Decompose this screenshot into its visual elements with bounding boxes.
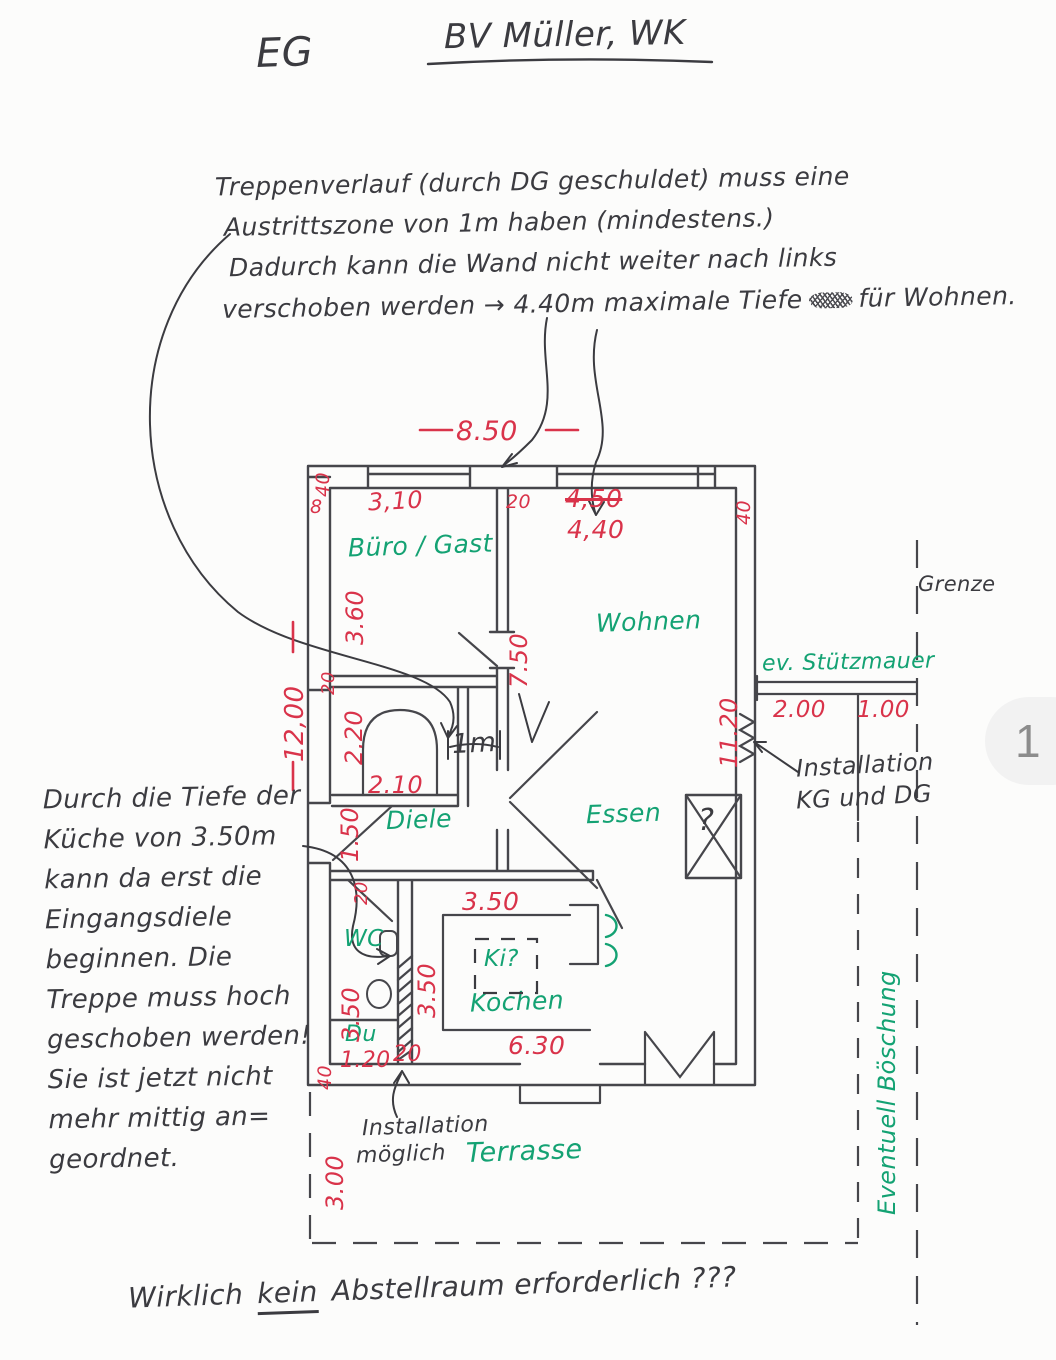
site-label-grenze: Grenze — [918, 572, 995, 596]
room-label-terrasse: Terrasse — [465, 1134, 582, 1169]
dim-stair-length: 2.10 — [368, 772, 423, 800]
dim-du-width: 1.20 — [340, 1048, 391, 1073]
left-note: Durch die Tiefe der Küche von 3.50m kann… — [43, 776, 314, 1181]
dim-wall-20-wc: 20 — [352, 881, 373, 905]
scribbled-out-word — [808, 292, 852, 309]
dim-stair-width: 2.20 — [341, 710, 369, 765]
dim-kitchen-depth-side: 3.50 — [414, 963, 442, 1018]
dim-buero-depth: 3.60 — [342, 590, 370, 645]
left-note-line: beginnen. Die — [45, 936, 310, 981]
dim-wohnen-depth: 7.50 — [506, 633, 534, 688]
dim-shaft-20: 20 — [393, 1042, 422, 1067]
bottom-question-emphasized: kein — [257, 1275, 319, 1315]
dim-stuetzmauer-length: 2.00 — [773, 697, 826, 723]
doors-and-fixtures — [333, 633, 917, 1103]
dim-kitchen-opening: 3.50 — [462, 888, 519, 917]
dim-kitchen-width: 6.30 — [508, 1032, 565, 1061]
dim-wall-40-right-top: 40 — [734, 500, 756, 525]
dim-wall-8-top-left: 8 — [310, 497, 323, 519]
room-label-wohnen: Wohnen — [596, 606, 702, 638]
dim-total-width: 8.50 — [456, 416, 518, 447]
dim-wohnen-width-new: 4,40 — [567, 516, 624, 545]
kitchen-island-dashed-box — [472, 936, 540, 996]
dim-wall-40-bottom-left: 40 — [315, 1065, 337, 1090]
installation-shaft-note-line-2: möglich — [356, 1140, 447, 1168]
room-label-essen: Essen — [586, 799, 662, 830]
page-title: BV Müller, WK — [444, 14, 686, 61]
left-note-line: mehr mittig an= — [48, 1096, 313, 1141]
left-note-line: geordnet. — [49, 1136, 314, 1181]
dim-stuetzmauer-gap: 1.00 — [857, 697, 910, 723]
room-label-wc: WC — [344, 926, 384, 952]
site-label-stuetzmauer: ev. Stützmauer — [762, 648, 935, 676]
green-door-arcs — [606, 915, 617, 966]
dim-total-depth: 12,00 — [281, 686, 311, 762]
dim-wall-40-top-left: 40 — [313, 472, 335, 497]
floor-label: EG — [255, 29, 314, 77]
left-note-line: Durch die Tiefe der — [43, 776, 308, 821]
dim-entry-door: 1.50 — [337, 807, 365, 862]
dim-wohnen-width-old: 4,50 — [565, 485, 622, 514]
left-note-line: kann da erst die — [44, 856, 309, 901]
floor-plan-sketch-page: EG BV Müller, WK Treppenverlauf (durch D… — [0, 0, 1056, 1360]
site-label-boeschung: Eventuell Böschung — [874, 970, 902, 1215]
dim-wall-20-left: 20 — [319, 671, 340, 695]
one-meter-annotation: 1m — [451, 727, 497, 760]
left-note-line: Küche von 3.50m — [43, 816, 308, 861]
toilet-bowl — [367, 980, 391, 1008]
room-label-diele: Diele — [386, 805, 453, 836]
top-note-line-5-text: für Wohnen. — [858, 281, 1017, 313]
left-note-line: geschoben werden! — [47, 1016, 312, 1061]
dim-terrace-depth: 3.00 — [322, 1155, 350, 1210]
bottom-question-prefix: Wirklich — [128, 1278, 244, 1315]
dim-buero-width: 3,10 — [367, 487, 423, 517]
dim-right-inner-depth: 11.20 — [716, 697, 744, 768]
shaft-question-mark: ? — [698, 804, 714, 839]
dim-wall-20-top: 20 — [506, 492, 531, 514]
dim-wc-zone-depth: 3.50 — [338, 987, 366, 1042]
page-number: 1 — [1015, 714, 1041, 768]
left-note-line: Treppe muss hoch — [46, 976, 311, 1021]
left-note-line: Eingangsdiele — [45, 896, 310, 941]
installation-shaft-note-line-1: Installation — [362, 1112, 489, 1142]
left-note-line: Sie ist jetzt nicht — [47, 1056, 312, 1101]
room-label-buero: Büro / Gast — [348, 529, 494, 563]
